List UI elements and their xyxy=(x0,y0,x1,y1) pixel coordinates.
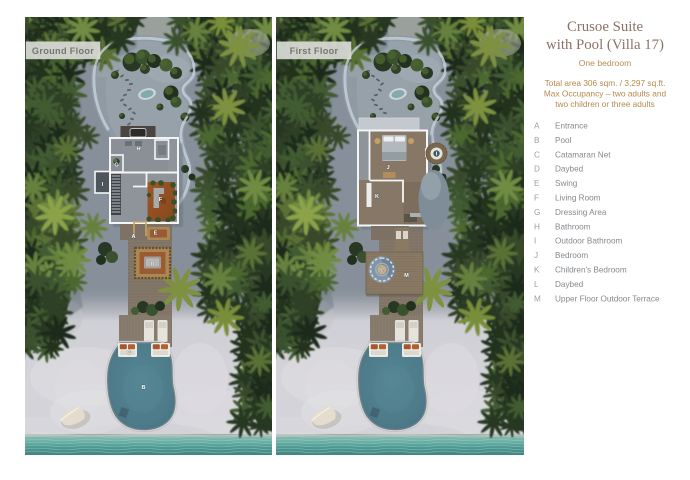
svg-text:Living Room: Living Room xyxy=(555,194,601,203)
svg-text:A: A xyxy=(131,234,135,240)
svg-text:Outdoor Bathroom: Outdoor Bathroom xyxy=(555,237,623,246)
svg-text:with Pool (Villa 17): with Pool (Villa 17) xyxy=(546,37,664,53)
svg-text:B: B xyxy=(534,136,540,145)
svg-text:E: E xyxy=(534,179,540,188)
svg-text:Daybed: Daybed xyxy=(555,280,584,289)
svg-text:J: J xyxy=(386,165,389,171)
svg-text:One bedroom: One bedroom xyxy=(579,58,632,68)
svg-text:Dressing Area: Dressing Area xyxy=(555,208,607,217)
svg-text:I: I xyxy=(534,237,536,246)
svg-text:H: H xyxy=(136,147,140,153)
svg-text:K: K xyxy=(375,194,379,200)
svg-text:Total area 306 sqm. / 3,297 sq: Total area 306 sqm. / 3,297 sq.ft. xyxy=(545,78,666,88)
svg-text:L: L xyxy=(534,280,539,289)
svg-text:C: C xyxy=(127,350,131,356)
svg-text:J: J xyxy=(534,251,538,260)
svg-text:Daybed: Daybed xyxy=(555,165,584,174)
svg-text:Bedroom: Bedroom xyxy=(555,251,588,260)
svg-text:E: E xyxy=(154,231,158,237)
svg-text:Pool: Pool xyxy=(555,136,572,145)
svg-text:Catamaran Net: Catamaran Net xyxy=(555,150,611,159)
svg-text:H: H xyxy=(534,222,540,231)
svg-text:M: M xyxy=(404,273,409,279)
svg-text:G: G xyxy=(114,163,118,169)
svg-text:K: K xyxy=(534,266,540,275)
svg-text:Children's Bedroom: Children's Bedroom xyxy=(555,266,627,275)
svg-text:Bathroom: Bathroom xyxy=(555,222,591,231)
svg-text:two children or three adults: two children or three adults xyxy=(555,99,655,109)
svg-text:Ground Floor: Ground Floor xyxy=(32,46,94,56)
svg-text:B: B xyxy=(141,385,145,391)
svg-text:Swing: Swing xyxy=(555,179,578,188)
svg-text:D: D xyxy=(150,262,154,268)
svg-text:L: L xyxy=(380,268,384,274)
svg-text:G: G xyxy=(534,208,540,217)
svg-text:Entrance: Entrance xyxy=(555,122,588,131)
svg-text:A: A xyxy=(534,122,540,131)
svg-text:Max Occupancy – two adults and: Max Occupancy – two adults and xyxy=(544,89,667,99)
svg-text:D: D xyxy=(534,165,540,174)
svg-text:F: F xyxy=(159,197,163,203)
svg-text:Crusoe Suite: Crusoe Suite xyxy=(567,19,643,35)
svg-text:F: F xyxy=(534,194,539,203)
svg-text:Upper Floor Outdoor Terrace: Upper Floor Outdoor Terrace xyxy=(555,294,660,303)
svg-text:M: M xyxy=(534,294,541,303)
svg-text:C: C xyxy=(534,150,540,159)
svg-text:First Floor: First Floor xyxy=(290,46,339,56)
